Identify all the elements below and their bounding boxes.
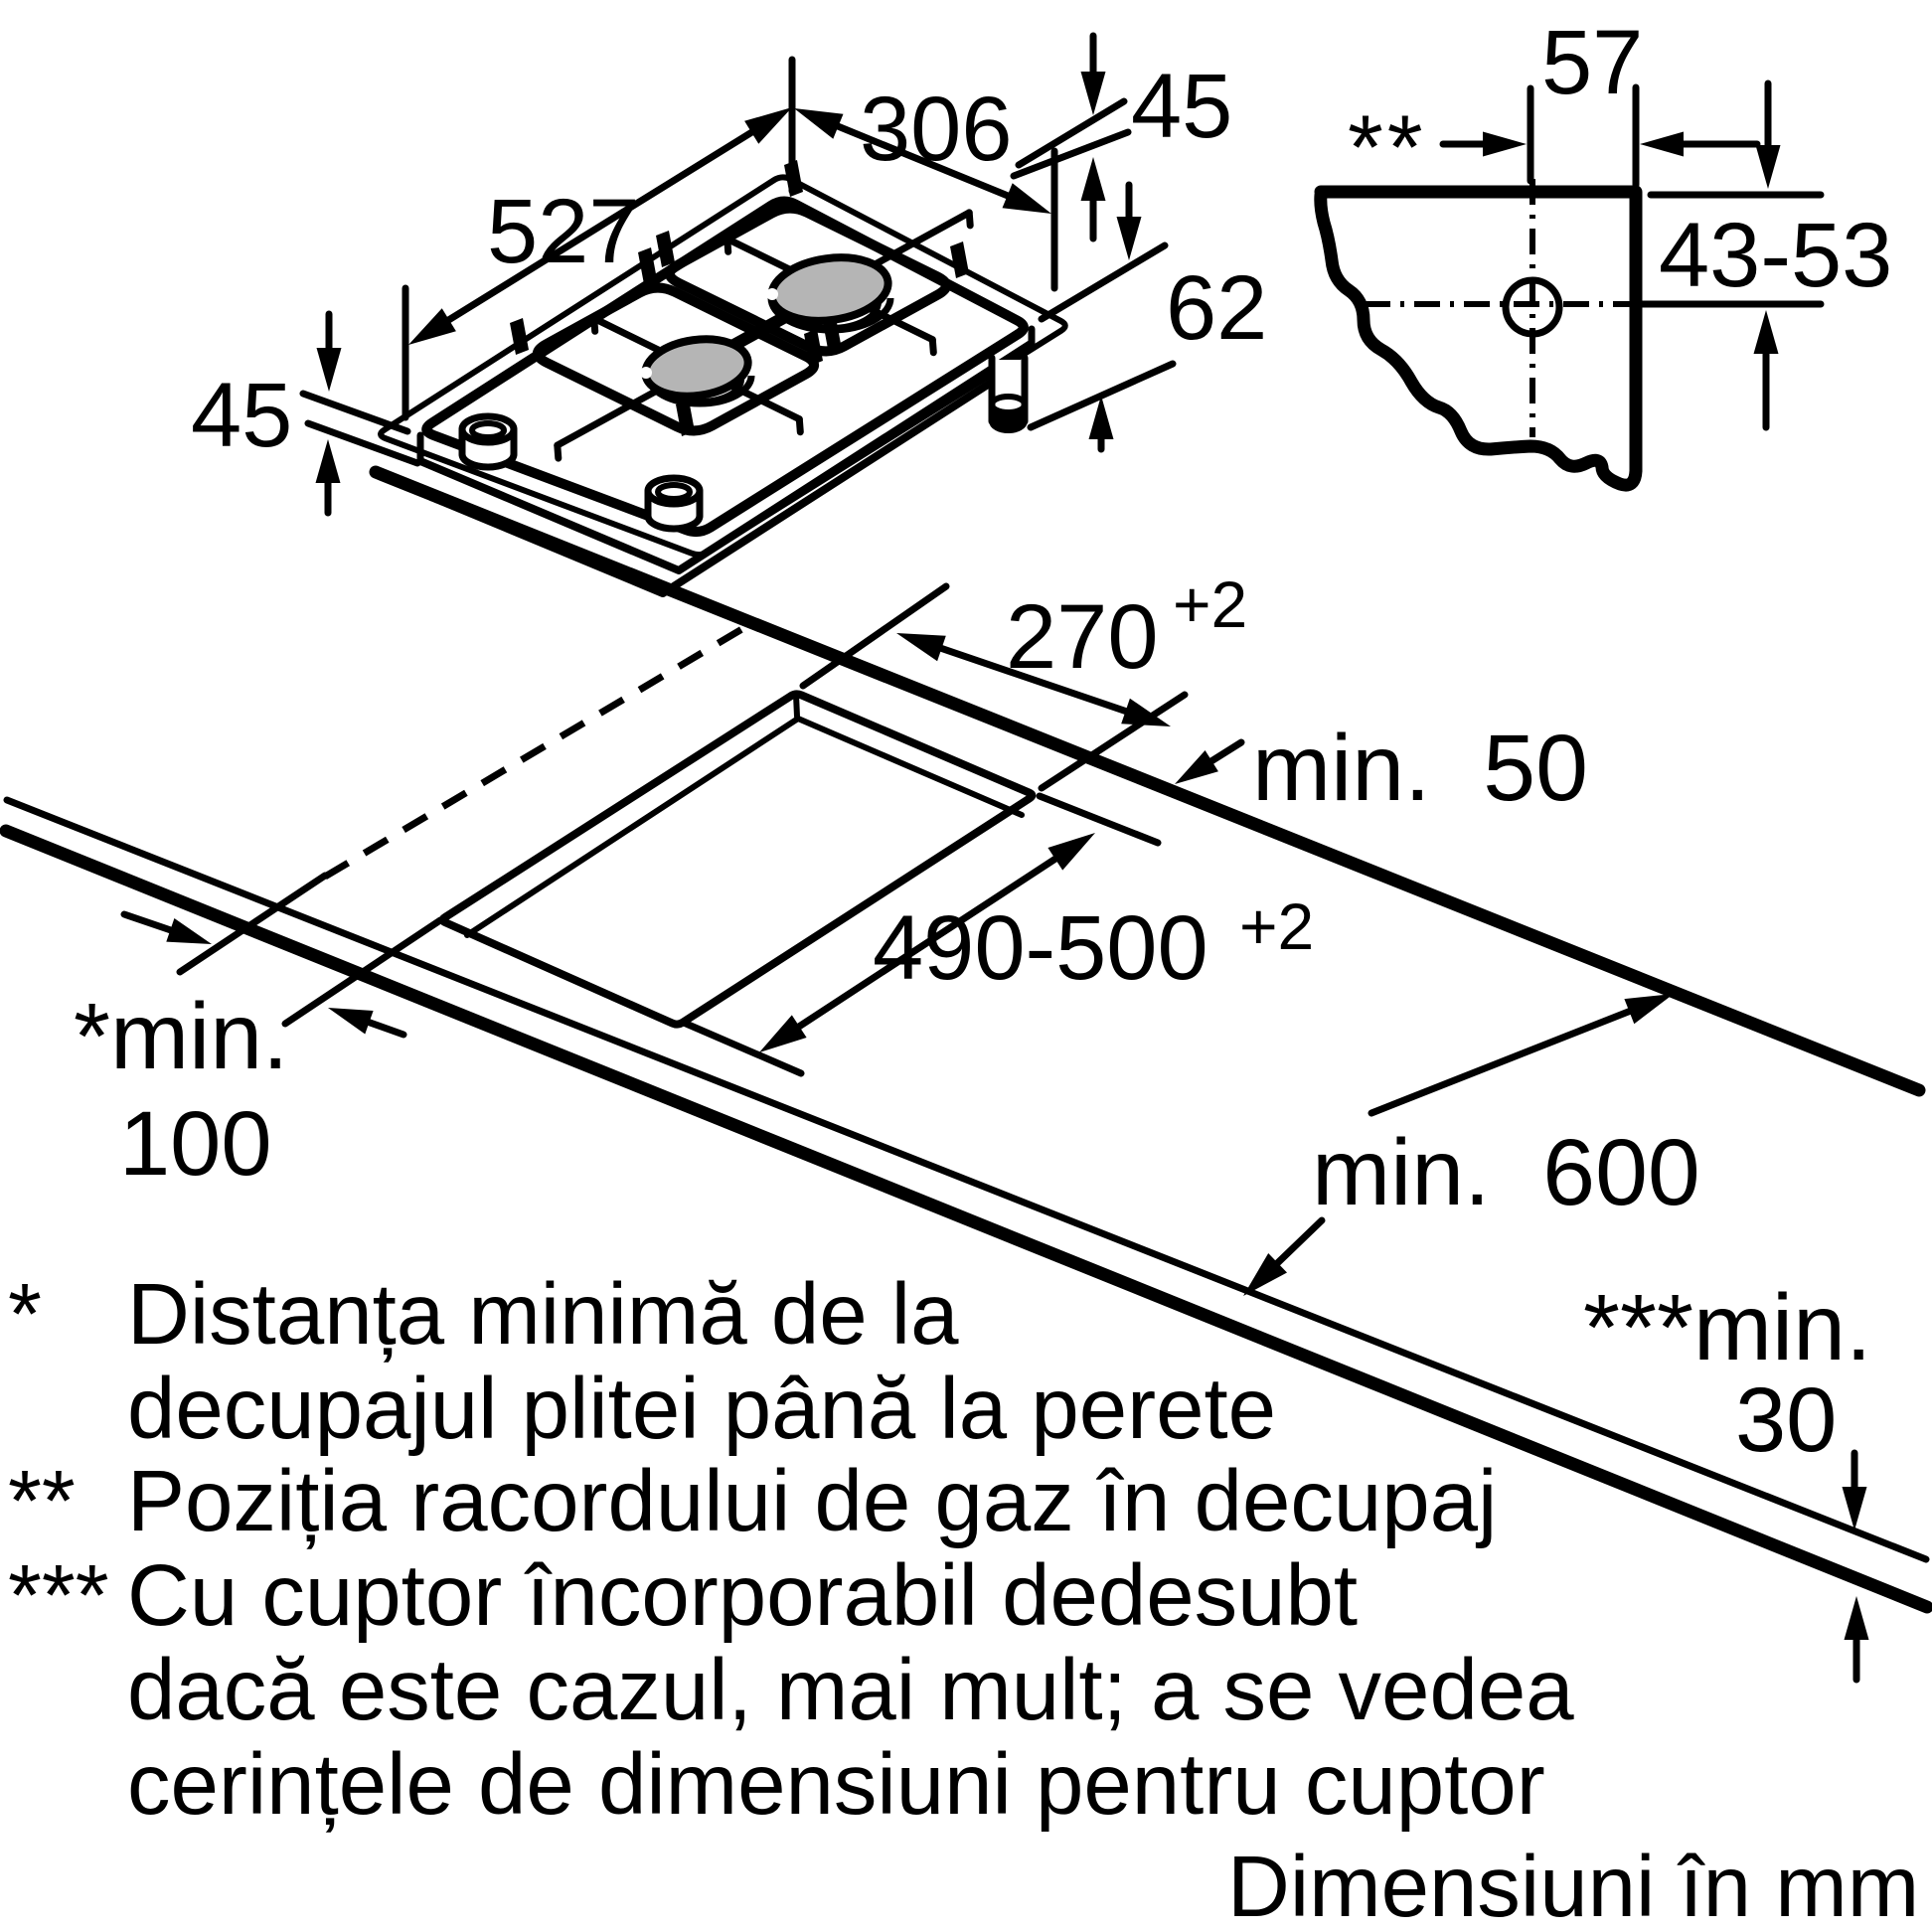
svg-text:62: 62 — [1166, 257, 1267, 359]
svg-text:+2: +2 — [1173, 567, 1247, 641]
svg-text:100: 100 — [119, 1093, 272, 1195]
svg-text:527: 527 — [487, 181, 640, 282]
svg-text:dacă este cazul, mai mult; a s: dacă este cazul, mai mult; a se vedea — [127, 1642, 1574, 1738]
svg-text:57: 57 — [1541, 12, 1643, 113]
svg-text:**: ** — [1348, 97, 1427, 199]
svg-text:Distanța minimă de la: Distanța minimă de la — [127, 1266, 959, 1363]
svg-text:45: 45 — [191, 365, 292, 466]
svg-text:***: *** — [8, 1547, 109, 1644]
svg-text:Poziția racordului de gaz în d: Poziția racordului de gaz în decupaj — [127, 1453, 1497, 1549]
svg-text:***min.: ***min. — [1583, 1275, 1871, 1380]
svg-text:306: 306 — [860, 79, 1013, 180]
svg-text:43-53: 43-53 — [1659, 205, 1892, 306]
svg-text:min. 50: min. 50 — [1252, 716, 1588, 821]
svg-text:min. 600: min. 600 — [1312, 1120, 1700, 1225]
svg-text:decupajul plitei până la peret: decupajul plitei până la perete — [127, 1361, 1276, 1457]
svg-text:**: ** — [8, 1453, 76, 1549]
svg-text:490-500: 490-500 — [873, 897, 1208, 999]
svg-text:45: 45 — [1131, 56, 1232, 157]
svg-text:*: * — [8, 1266, 42, 1363]
svg-text:30: 30 — [1735, 1369, 1837, 1471]
svg-text:*min.: *min. — [74, 984, 288, 1089]
svg-text:270: 270 — [1006, 586, 1159, 688]
svg-text:Dimensiuni în mm: Dimensiuni în mm — [1227, 1839, 1919, 1932]
svg-text:+2: +2 — [1239, 889, 1314, 963]
svg-text:Cu cuptor încorporabil dedesub: Cu cuptor încorporabil dedesubt — [127, 1547, 1358, 1644]
svg-text:cerințele de dimensiuni pentru: cerințele de dimensiuni pentru cuptor — [127, 1736, 1545, 1833]
